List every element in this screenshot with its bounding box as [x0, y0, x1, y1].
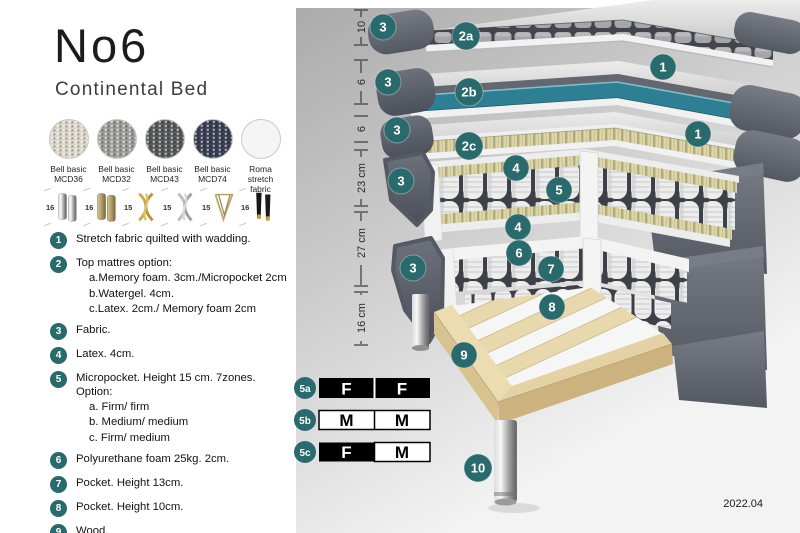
legend-item-5-option-a: a. Firm/ firm [89, 401, 290, 414]
fabric-swatch-label: Bell basic MCD32 [98, 164, 134, 184]
leg-option-twist-gold: 15 [124, 186, 160, 228]
measure-10: 10 [356, 21, 368, 33]
page: No6 Continental Bed Bell basic MCD36 Bel… [0, 0, 800, 533]
firmness-table: 5a F F 5b M M 5c F M [294, 377, 430, 463]
svg-text:2b: 2b [461, 85, 476, 100]
leg-height-label: 16 [241, 203, 249, 212]
leg-height-label: 16 [46, 203, 54, 212]
legend-number-badge: 2 [50, 256, 67, 273]
svg-text:6: 6 [515, 246, 522, 261]
legend-item-2-option-c: c.Latex. 2cm./ Memory foam 2cm [89, 303, 287, 316]
fabric-swatches: Bell basic MCD36 Bell basic MCD32 Bell b… [46, 119, 283, 195]
leg-height-label: 16 [85, 203, 93, 212]
callout-9: 9 [451, 342, 477, 368]
leg-option-cylinder-silver: 16 [46, 186, 82, 228]
legend-text-group: Micropocket. Height 15 cm. 7zones. Optio… [76, 372, 290, 445]
callout-2b: 2b [455, 78, 483, 106]
callout-fabric-3a: 3 [370, 14, 396, 40]
legend-text: Polyurethane foam 25kg. 2cm. [76, 453, 229, 466]
legend-list: 1 Stretch fabric quilted with wadding. 2… [50, 233, 290, 533]
legend-item-2-option-a: a.Memory foam. 3cm./Micropocket 2cm [89, 272, 287, 285]
callout-8: 8 [539, 294, 565, 320]
firmness-right-value: M [395, 443, 409, 462]
leg-option-cylinder-bronze: 16 [85, 186, 121, 228]
version-label: 2022.04 [723, 498, 763, 510]
firmness-left-value: F [341, 380, 351, 399]
legend-text: Fabric. [76, 324, 111, 337]
legend-item-8: 8 Pocket. Height 10cm. [50, 501, 290, 517]
info-panel: No6 Continental Bed Bell basic MCD36 Bel… [0, 0, 293, 533]
legend-text: Micropocket. Height 15 cm. 7zones. Optio… [76, 372, 290, 399]
fabric-swatch-mcd74: Bell basic MCD74 [190, 119, 235, 195]
callout-5: 5 [546, 177, 572, 203]
legend-text: Pocket. Height 10cm. [76, 501, 183, 514]
legend-item-2-option-b: b.Watergel. 4cm. [89, 288, 287, 301]
fabric-name: Bell basic [146, 164, 182, 174]
callout-1b: 1 [685, 121, 711, 147]
callout-4-top: 4 [503, 155, 529, 181]
legend-number-badge: 5 [50, 371, 67, 388]
svg-text:3: 3 [397, 174, 404, 189]
product-title: No6 [54, 22, 208, 69]
bed-diagram-svg: 10 6 6 23 cm 27 cm 16 cm 3 2a 1 3 2b 3 2… [293, 0, 800, 533]
legend-item-7: 7 Pocket. Height 13cm. [50, 477, 290, 493]
measure-6-latex: 6 [356, 126, 368, 132]
firmness-left-value: M [339, 411, 353, 430]
legend-number-badge: 7 [50, 476, 67, 493]
fabric-code: MCD36 [50, 174, 86, 184]
legend-item-1: 1 Stretch fabric quilted with wadding. [50, 233, 290, 249]
fabric-name: Bell basic [50, 164, 86, 174]
leg-height-label: 15 [124, 203, 132, 212]
twist-gold-leg-icon [133, 189, 160, 225]
svg-text:3: 3 [409, 261, 416, 276]
leg-height-label: 15 [202, 203, 210, 212]
legend-text: Pocket. Height 13cm. [76, 477, 183, 490]
fabric-code: MCD43 [146, 174, 182, 184]
legend-text: Stretch fabric quilted with wadding. [76, 233, 251, 246]
svg-text:4: 4 [512, 161, 520, 176]
leg-options: 16 16 15 [46, 186, 277, 228]
svg-text:8: 8 [548, 300, 555, 315]
cylinder-silver-leg-icon [55, 189, 82, 225]
cylinder-bronze-leg-icon [94, 189, 121, 225]
svg-text:5: 5 [555, 183, 562, 198]
fabric-swatch-label: Bell basic MCD36 [50, 164, 86, 184]
callout-fabric-3e: 3 [400, 255, 426, 281]
callout-4-bottom: 4 [505, 214, 531, 240]
fabric-swatch-image [145, 119, 185, 159]
fabric-swatch-roma: Roma stretch fabric [238, 119, 283, 195]
legend-item-5: 5 Micropocket. Height 15 cm. 7zones. Opt… [50, 372, 290, 445]
fabric-swatch-image [241, 119, 281, 159]
svg-text:10: 10 [471, 461, 485, 476]
legend-number-badge: 8 [50, 500, 67, 517]
legend-item-3: 3 Fabric. [50, 324, 290, 340]
callout-2a: 2a [452, 22, 480, 50]
legend-text: Wood. [76, 525, 108, 533]
legend-item-5-option-b: b. Medium/ medium [89, 416, 290, 429]
callout-2c: 2c [455, 132, 483, 160]
fabric-swatch-mcd32: Bell basic MCD32 [94, 119, 139, 195]
svg-text:3: 3 [393, 123, 400, 138]
callout-10: 10 [464, 454, 492, 482]
firmness-left-value: F [341, 443, 351, 462]
product-subtitle: Continental Bed [55, 79, 208, 101]
measure-27cm: 27 cm [356, 228, 368, 258]
title-block: No6 Continental Bed [54, 22, 208, 101]
svg-text:1: 1 [694, 127, 701, 142]
fabric-name: Bell basic [194, 164, 230, 174]
legend-text: Top mattres option: [76, 257, 287, 270]
leg-option-tapered-black: 16 [241, 186, 277, 228]
svg-text:4: 4 [514, 220, 522, 235]
callout-1a: 1 [650, 54, 676, 80]
callout-7: 7 [538, 256, 564, 282]
firmness-right-value: M [395, 411, 409, 430]
back-leg [412, 294, 429, 351]
svg-text:2c: 2c [462, 139, 476, 154]
legend-item-5-option-c: c. Firm/ medium [89, 432, 290, 445]
svg-text:7: 7 [547, 262, 554, 277]
fabric-swatch-mcd43: Bell basic MCD43 [142, 119, 187, 195]
fabric-code: MCD32 [98, 174, 134, 184]
firmness-right-value: F [397, 380, 407, 399]
legend-item-4: 4 Latex. 4cm. [50, 348, 290, 364]
legend-number-badge: 6 [50, 452, 67, 469]
leg-height-label: 15 [163, 203, 171, 212]
svg-text:3: 3 [379, 20, 386, 35]
measure-6-watergel: 6 [356, 79, 368, 85]
legend-text: Latex. 4cm. [76, 348, 134, 361]
fabric-code: MCD74 [194, 174, 230, 184]
fabric-swatch-image [97, 119, 137, 159]
svg-text:3: 3 [384, 75, 391, 90]
legend-item-9: 9 Wood. [50, 525, 290, 533]
callout-fabric-3c: 3 [384, 117, 410, 143]
callout-6: 6 [506, 240, 532, 266]
callout-fabric-3b: 3 [375, 69, 401, 95]
leg-option-hairpin: 15 [202, 186, 238, 228]
fabric-swatch-mcd36: Bell basic MCD36 [46, 119, 91, 195]
legend-number-badge: 9 [50, 524, 67, 533]
exploded-bed-diagram: 10 6 6 23 cm 27 cm 16 cm 3 2a 1 3 2b 3 2… [293, 0, 800, 533]
leg-option-twist-silver: 15 [163, 186, 199, 228]
fabric-swatch-label: Bell basic MCD74 [194, 164, 230, 184]
measure-16cm: 16 cm [356, 303, 368, 333]
fabric-name: Roma [238, 164, 283, 174]
legend-number-badge: 1 [50, 232, 67, 249]
svg-text:9: 9 [460, 348, 467, 363]
svg-text:2a: 2a [459, 29, 474, 44]
fabric-swatch-image [193, 119, 233, 159]
fabric-swatch-label: Bell basic MCD43 [146, 164, 182, 184]
legend-number-badge: 4 [50, 347, 67, 364]
twist-silver-leg-icon [172, 189, 199, 225]
firmness-row-label: 5b [299, 416, 311, 427]
legend-number-badge: 3 [50, 323, 67, 340]
firmness-row-label: 5a [299, 384, 311, 395]
measure-23cm: 23 cm [356, 163, 368, 193]
legend-item-6: 6 Polyurethane foam 25kg. 2cm. [50, 453, 290, 469]
legend-item-2: 2 Top mattres option: a.Memory foam. 3cm… [50, 257, 290, 316]
fabric-name: Bell basic [98, 164, 134, 174]
svg-text:1: 1 [659, 60, 666, 75]
hairpin-leg-icon [211, 189, 238, 225]
fabric-swatch-image [49, 119, 89, 159]
legend-text-group: Top mattres option: a.Memory foam. 3cm./… [76, 257, 287, 316]
firmness-row-label: 5c [299, 448, 311, 459]
tapered-black-gold-leg-icon [250, 189, 277, 225]
callout-fabric-3d: 3 [388, 168, 414, 194]
